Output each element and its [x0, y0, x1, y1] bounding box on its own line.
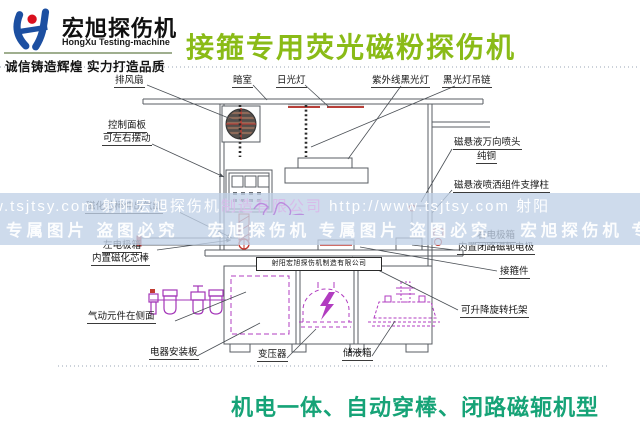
label-pneumatic: 气动元件在侧面: [87, 311, 156, 324]
logo-divider: [4, 52, 172, 54]
label-coupling: 接箍件: [499, 266, 530, 279]
label-left-electrode-sub: 内置磁化芯棒: [91, 253, 150, 266]
machine-nameplate: 射阳宏旭探伤机制造有限公司: [256, 257, 382, 271]
pneumatic-units-drawing: [149, 286, 226, 314]
watermark-squiggle: [250, 197, 320, 215]
fluorescent-lamp-drawing: [288, 105, 364, 107]
watermark-line2: 专属图片 盗图必究 宏旭探伤机 专属图片 盗图必究 宏旭探伤机 专属图片: [6, 217, 640, 241]
label-nozzle: 磁悬液万向喷头: [453, 137, 522, 150]
label-liquid-tank: 储液箱: [342, 348, 373, 361]
page-title: 接箍专用荧光磁粉探伤机: [186, 26, 516, 66]
logo: 宏旭探伤机 HongXu Testing-machine 诚信铸造辉煌 实力打造…: [4, 3, 179, 75]
brand-name-en: HongXu Testing-machine: [62, 37, 170, 47]
hongxu-logo-icon: [8, 7, 58, 51]
watermark-line1-left: w.tsjtsy.com 射阳宏旭探伤机: [0, 198, 221, 215]
page: 宏旭探伤机 HongXu Testing-machine 诚信铸造辉煌 实力打造…: [0, 0, 640, 428]
label-control-panel-sub: 可左右摆动: [102, 133, 152, 146]
footer-caption: 机电一体、自动穿棒、闭路磁轭机型: [195, 390, 635, 422]
label-fluorescent-lamp: 日光灯: [276, 75, 307, 88]
uv-lamp-drawing: [285, 158, 368, 183]
label-transformer: 变压器: [257, 349, 288, 362]
label-nozzle-sub: 纯铜: [476, 151, 497, 164]
label-spray-column: 磁悬液喷洒组件支撑柱: [453, 180, 550, 193]
label-black-lamp-chain: 黑光灯吊链: [442, 75, 492, 88]
brand-tagline: 诚信铸造辉煌 实力打造品质: [5, 56, 165, 75]
label-electrical-board: 电器安装板: [149, 347, 199, 360]
watermark-line1-right: http://www.tsjtsy.com 射阳: [323, 198, 550, 215]
watermark-band: w.tsjtsy.com 射阳宏旭探伤机制造有限公司 http://www.ts…: [0, 193, 640, 245]
label-control-panel: 控制面板: [107, 120, 147, 133]
label-darkroom: 暗室: [232, 75, 253, 88]
label-rotating-bracket: 可升降旋转托架: [460, 305, 529, 318]
label-uv-black-lamp: 紫外线黑光灯: [371, 75, 430, 88]
label-exhaust-fan: 排风扇: [114, 75, 145, 88]
